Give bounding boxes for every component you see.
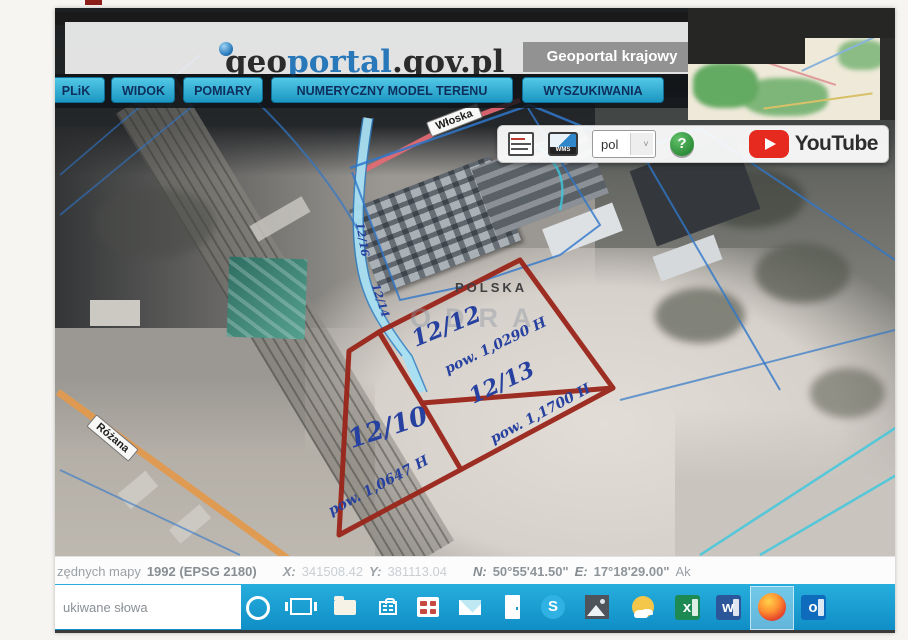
- wms-layers-icon[interactable]: WMS: [548, 132, 578, 156]
- youtube-label: YouTube: [795, 132, 878, 156]
- legend-list-icon[interactable]: [508, 132, 534, 156]
- screen-bottom-edge: [55, 630, 895, 633]
- outlook-icon[interactable]: o: [799, 593, 827, 621]
- file-explorer-icon[interactable]: [331, 593, 359, 621]
- skype-icon[interactable]: S: [539, 593, 567, 621]
- geoportal-krajowy-badge[interactable]: Geoportal krajowy: [523, 42, 701, 72]
- map-toolbar: WMS pol ˅ ? YouTube: [497, 125, 889, 163]
- cadastral-line: [620, 330, 895, 400]
- microsoft-store-icon[interactable]: [374, 593, 402, 621]
- status-x-label: X:: [283, 564, 296, 579]
- scanned-screenshot-page: POLSKA ODRA Włoska Różana 12/12 pow. 1,0…: [0, 0, 908, 640]
- menu-item-pomiary[interactable]: POMIARY: [183, 77, 263, 103]
- firefox-icon[interactable]: [750, 586, 794, 630]
- status-prefix: zędnych mapy: [57, 564, 141, 579]
- excel-icon[interactable]: x: [673, 593, 701, 621]
- status-y-value: 381113.04: [387, 564, 447, 579]
- language-value: pol: [593, 137, 618, 152]
- cadastral-line: [250, 95, 358, 230]
- menu-item-wyszukiwania[interactable]: WYSZUKIWANIA: [522, 77, 664, 103]
- task-view-icon[interactable]: [287, 593, 315, 621]
- minimap-forest-area: [743, 78, 828, 116]
- calendar-icon[interactable]: [414, 593, 442, 621]
- overview-minimap[interactable]: [688, 8, 895, 120]
- cortana-icon[interactable]: [244, 593, 272, 621]
- language-select[interactable]: pol ˅: [592, 130, 656, 158]
- status-n-value: 50°55'41.50": [493, 564, 569, 579]
- status-x-value: 341508.42: [302, 564, 363, 579]
- taskbar-search-input[interactable]: [55, 585, 241, 629]
- chevron-down-icon: ˅: [630, 133, 653, 155]
- status-suffix: Ak: [676, 564, 691, 579]
- status-n-label: N:: [473, 564, 487, 579]
- weather-icon[interactable]: [629, 593, 657, 621]
- your-phone-icon[interactable]: [498, 593, 526, 621]
- photos-icon[interactable]: [583, 593, 611, 621]
- cyan-annotation-line: [700, 425, 895, 555]
- minimap-redaction-block: [880, 38, 895, 120]
- cadastral-line: [60, 470, 240, 555]
- scan-artifact-mark: [85, 0, 102, 5]
- word-icon[interactable]: w: [714, 593, 742, 621]
- menu-item-nmt[interactable]: NUMERYCZNY MODEL TERENU: [271, 77, 513, 103]
- youtube-play-icon: [749, 130, 789, 158]
- status-e-value: 17°18'29.00": [594, 564, 670, 579]
- watermark-polska: POLSKA: [455, 280, 527, 295]
- help-button[interactable]: ?: [670, 132, 694, 156]
- cadastral-line: [640, 150, 780, 390]
- minimap-redaction-block: [688, 8, 805, 64]
- screenshot-content: POLSKA ODRA Włoska Różana 12/12 pow. 1,0…: [55, 8, 895, 633]
- status-crs: 1992 (EPSG 2180): [147, 564, 257, 579]
- status-e-label: E:: [575, 564, 588, 579]
- menu-item-plik[interactable]: PLiK: [55, 77, 105, 103]
- coordinates-status-bar: zędnych mapy 1992 (EPSG 2180) X: 341508.…: [55, 556, 895, 585]
- mail-icon[interactable]: [456, 593, 484, 621]
- menu-item-widok[interactable]: WIDOK: [111, 77, 175, 103]
- minimap-forest-area: [838, 40, 886, 70]
- globe-icon: [219, 42, 233, 56]
- youtube-link[interactable]: YouTube: [749, 130, 878, 158]
- status-y-label: Y:: [369, 564, 381, 579]
